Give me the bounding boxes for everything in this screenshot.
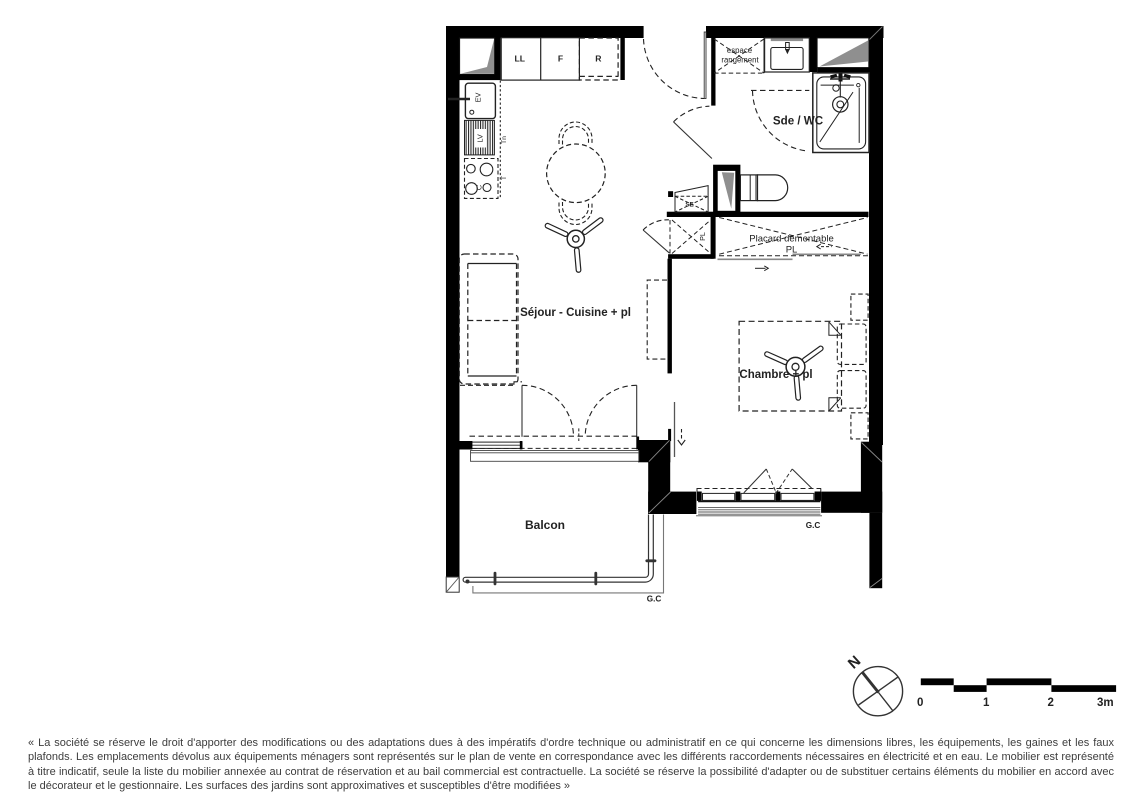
svg-text:Tn: Tn xyxy=(501,136,508,144)
svg-text:PL: PL xyxy=(786,245,798,256)
svg-text:Placard démontable: Placard démontable xyxy=(749,233,834,244)
svg-text:LL: LL xyxy=(515,54,526,64)
svg-text:G.C: G.C xyxy=(806,521,821,530)
svg-text:Sde / WC: Sde / WC xyxy=(773,115,824,128)
svg-text:G.C: G.C xyxy=(647,595,662,604)
svg-text:F: F xyxy=(558,54,563,64)
svg-text:espace: espace xyxy=(727,46,752,55)
svg-text:PL: PL xyxy=(698,232,707,241)
svg-text:3m: 3m xyxy=(1097,697,1114,709)
svg-text:SE: SE xyxy=(685,201,693,208)
svg-text:R: R xyxy=(595,54,602,64)
svg-text:Chambre + pl: Chambre + pl xyxy=(739,369,812,381)
svg-text:rangement: rangement xyxy=(721,56,759,65)
svg-text:N: N xyxy=(845,653,864,673)
svg-text:1: 1 xyxy=(983,697,990,709)
svg-text:EV: EV xyxy=(474,93,483,103)
svg-text:C: C xyxy=(475,184,484,190)
svg-text:LV: LV xyxy=(476,134,485,143)
svg-text:Balcon: Balcon xyxy=(525,518,565,532)
svg-text:Séjour - Cuisine + pl: Séjour - Cuisine + pl xyxy=(520,307,631,319)
svg-text:2: 2 xyxy=(1048,697,1054,709)
svg-text:0: 0 xyxy=(917,697,923,709)
svg-text:T: T xyxy=(501,176,508,180)
